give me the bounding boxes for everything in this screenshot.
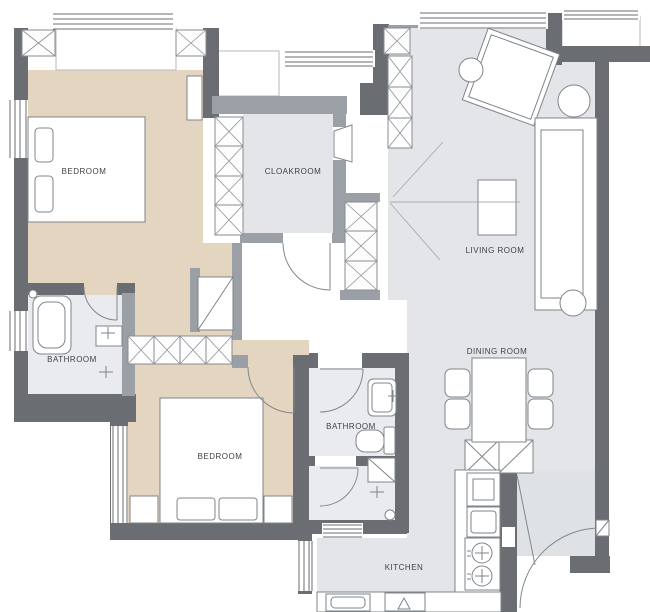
- bathtub: [33, 296, 71, 354]
- room-label-bathroom-1: BATHROOM: [47, 355, 97, 364]
- sideboard-dining: [465, 440, 533, 473]
- room-label-bedroom-1: BEDROOM: [62, 167, 107, 176]
- window-bathroom-2-bottom: [322, 523, 363, 537]
- toilet: [356, 427, 395, 454]
- stool-living-1: [459, 58, 483, 82]
- floor-plan: BEDROOM CLOAKROOM LIVING ROOM BATHROOM B…: [0, 0, 650, 612]
- wardrobe-entry: [345, 202, 377, 290]
- room-label-bathroom-2: BATHROOM: [326, 422, 376, 431]
- room-label-dining-room: DINING ROOM: [467, 347, 528, 356]
- stove: [465, 538, 500, 590]
- floor-drain-shower: [385, 510, 395, 520]
- door-cloakroom: [334, 125, 352, 162]
- bay-window-cloakroom: [217, 51, 279, 96]
- door-hallway: [283, 243, 330, 290]
- room-label-kitchen: KITCHEN: [385, 563, 424, 572]
- column-icon: [176, 30, 206, 56]
- door-leaf-bedroom-1: [187, 76, 202, 120]
- kitchen-sink: [326, 594, 370, 611]
- window-bedroom-1-left: [8, 100, 28, 158]
- dishwasher: [385, 593, 425, 611]
- bay-window-bedroom-1: [56, 28, 176, 70]
- corner-shelf-shower: [368, 458, 395, 482]
- sink-bathroom-1: [96, 326, 122, 346]
- floor-plan-page: BEDROOM CLOAKROOM LIVING ROOM BATHROOM B…: [0, 0, 650, 612]
- cabinet-hall-top: [388, 56, 412, 148]
- window-bedroom-1-top: [50, 12, 176, 30]
- sofa-living: [535, 118, 597, 310]
- floor-drain-bathroom-1: [29, 290, 37, 298]
- window-bedroom-2-left: [111, 426, 128, 523]
- wall-break-icon: [596, 520, 609, 536]
- sink-bathroom-2: [368, 379, 398, 416]
- window-niche-top-right: [562, 9, 640, 20]
- wardrobe-cloakroom-left: [215, 117, 243, 235]
- window-bathroom-1-left: [8, 311, 28, 351]
- room-label-bedroom-2: BEDROOM: [198, 452, 243, 461]
- window-kitchen-left: [297, 541, 312, 591]
- niche-top-right: [562, 16, 640, 48]
- column-icon: [384, 28, 410, 54]
- room-label-cloakroom: CLOAKROOM: [265, 167, 322, 176]
- column-icon: [22, 30, 55, 56]
- cabinet-hallway: [198, 277, 233, 330]
- wardrobe-hall-horizontal: [128, 336, 232, 364]
- dining-set: [445, 358, 553, 442]
- window-living-top: [418, 11, 548, 29]
- coffee-table: [478, 180, 516, 235]
- stool-living-2: [558, 85, 590, 117]
- room-label-living-room: LIVING ROOM: [466, 246, 525, 255]
- window-cloakroom-top: [283, 50, 375, 67]
- stool-living-3: [560, 290, 586, 316]
